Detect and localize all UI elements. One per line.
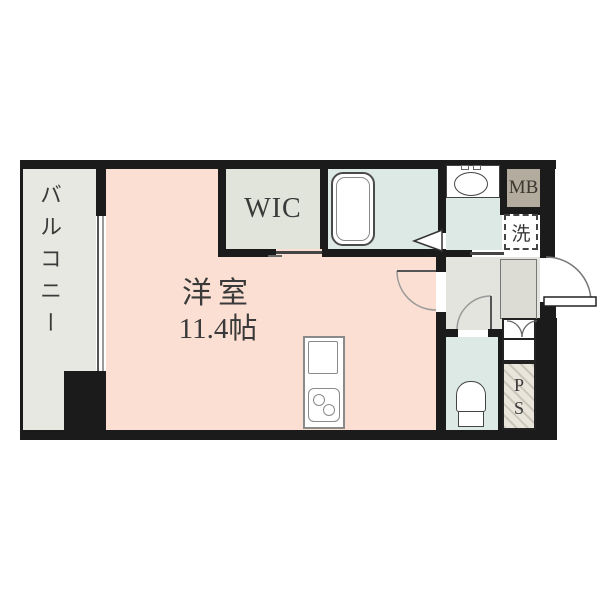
- wall-room-left-upper: [96, 169, 106, 216]
- pipe-space-label: P S: [502, 364, 536, 428]
- wall-right-upper: [540, 160, 555, 258]
- wall-balcony-left: [20, 169, 23, 430]
- room-size-label: 11.4帖: [118, 312, 318, 347]
- floorplan: バルコニー 洋室 11.4帖 WIC MB 洗 P S: [0, 0, 600, 600]
- wic-sliding-door: [276, 251, 322, 254]
- room-label: 洋室: [118, 276, 318, 312]
- pipe-space-letter-s: S: [514, 399, 524, 417]
- washbasin-sink: [454, 172, 488, 196]
- washbasin-faucet: [461, 165, 469, 170]
- meter-box-label: MB: [507, 169, 540, 207]
- room-label-block: 洋室 11.4帖: [118, 276, 318, 356]
- stove-burner-2: [323, 404, 335, 416]
- toilet-tank: [458, 411, 484, 427]
- entrance-door-arc: [546, 257, 591, 302]
- wall-wic-bath: [320, 169, 328, 249]
- bathtub-inner: [336, 177, 370, 241]
- washbasin-faucet2: [473, 165, 481, 170]
- wic-sliding-door-tick: [268, 255, 282, 257]
- wall-bath-bottom: [322, 249, 446, 257]
- wic-label: WIC: [226, 169, 320, 249]
- wall-bottom: [20, 430, 556, 440]
- shoe-cabinet-divider: [504, 338, 534, 340]
- genkan: [500, 259, 537, 319]
- washer-label: 洗: [504, 214, 538, 250]
- wall-room-right-a: [436, 257, 446, 272]
- balcony-window-line-outer: [97, 216, 99, 371]
- toilet-bowl: [456, 381, 486, 412]
- pipe-space-letter-p: P: [514, 376, 524, 394]
- wall-right-lower-wide: [536, 318, 557, 440]
- wall-bath-washroom: [438, 169, 446, 233]
- stove-burner-1: [313, 394, 325, 406]
- balcony-window-line-inner: [102, 216, 104, 371]
- wall-balcony-block: [64, 371, 106, 430]
- balcony-label: バルコニー: [34, 183, 64, 378]
- wall-washroom-bottom: [438, 250, 472, 257]
- washroom-sliding-door: [470, 252, 504, 255]
- wall-wic-left: [218, 169, 226, 257]
- wall-toilet-top-left: [436, 329, 458, 337]
- shoe-cabinet: [502, 318, 536, 362]
